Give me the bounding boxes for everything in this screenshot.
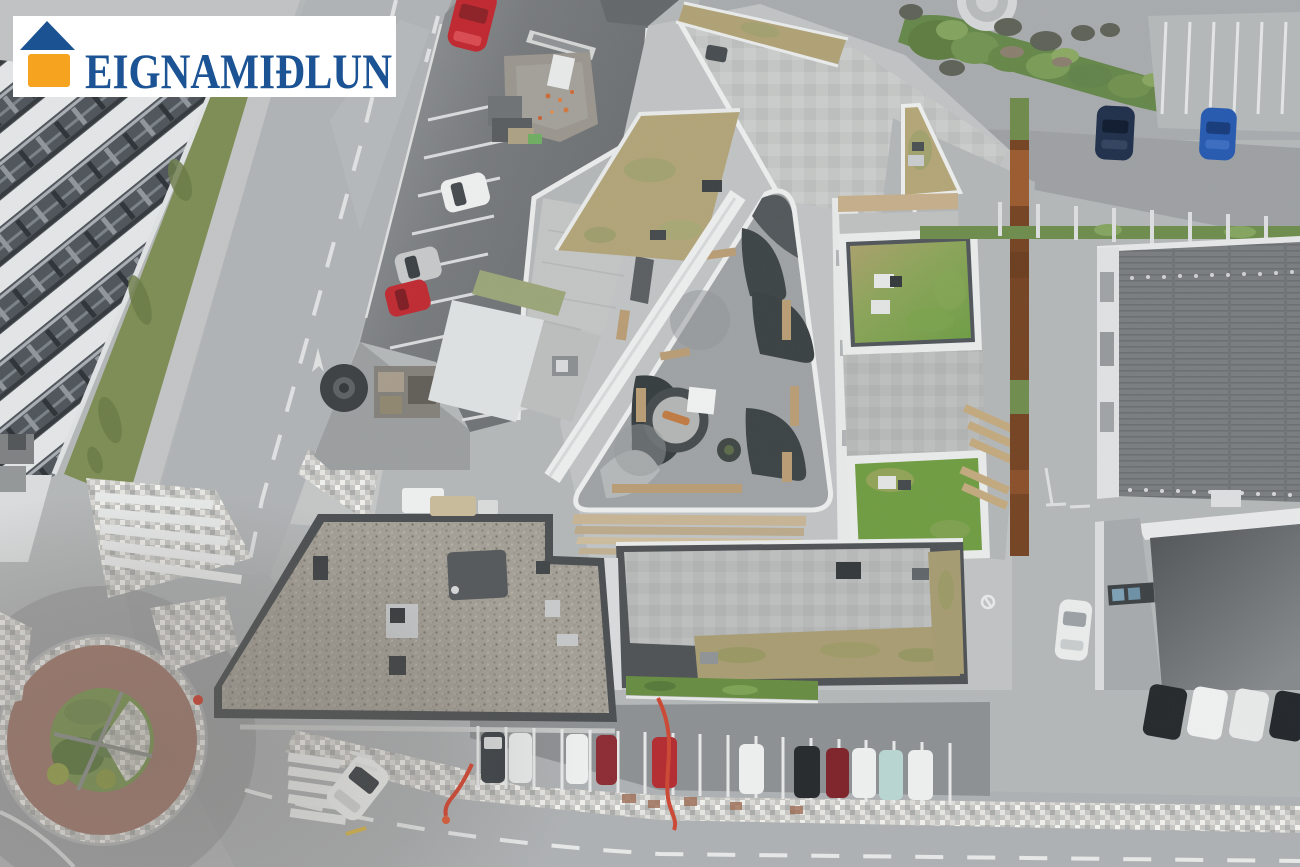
- svg-text:EIGNAMIÐLUN: EIGNAMIÐLUN: [85, 43, 392, 99]
